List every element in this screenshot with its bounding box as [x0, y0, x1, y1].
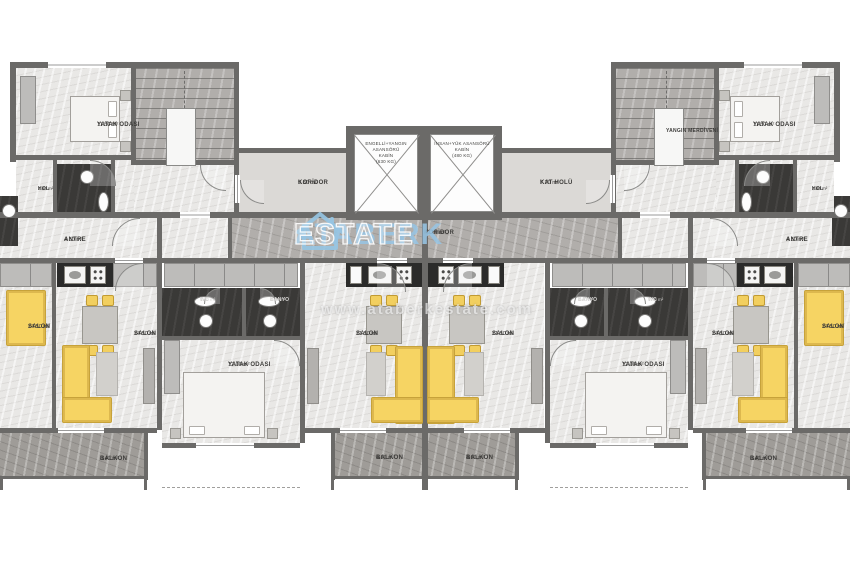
- bed-icon: [585, 372, 667, 438]
- fix-circle-fixture-icon: [638, 314, 652, 328]
- wall: [131, 62, 136, 165]
- wall: [331, 428, 335, 480]
- rug-icon: [96, 352, 118, 396]
- wall: [52, 262, 56, 428]
- wall: [618, 215, 622, 260]
- stair-landing: [166, 108, 196, 166]
- wall: [331, 478, 334, 490]
- chair-icon: [737, 295, 749, 306]
- chair-icon: [753, 295, 765, 306]
- dining-table-icon: [449, 306, 485, 344]
- window: [707, 258, 735, 263]
- sofa-icon: [62, 397, 112, 423]
- chair-icon: [386, 295, 398, 306]
- rug-icon: [732, 352, 754, 396]
- window: [640, 212, 670, 218]
- fix-circle-fixture-icon: [574, 314, 588, 328]
- sofa-icon: [6, 290, 46, 346]
- bed-icon: [730, 96, 780, 142]
- fix-circle-fixture-icon: [834, 204, 848, 218]
- fix-circle-fixture-icon: [263, 314, 277, 328]
- wall: [716, 155, 834, 160]
- wall: [10, 62, 16, 162]
- fix-oval-fixture-icon: [741, 192, 752, 212]
- wall: [111, 160, 115, 214]
- floor-plan-canvas: ENGELLİ+YANGIN ASANSÖRÜ KABİN (630 KG)İN…: [0, 0, 850, 566]
- wall: [10, 62, 238, 68]
- wall: [604, 288, 608, 336]
- tv-unit-icon: [307, 348, 319, 404]
- wall: [53, 160, 57, 214]
- wardrobe-strip-left: [164, 263, 298, 287]
- elevator-label: ENGELLİ+YANGIN ASANSÖRÜ KABİN (630 KG): [355, 141, 417, 165]
- fix-circle-fixture-icon: [199, 314, 213, 328]
- k-stove-fixture-icon: [90, 266, 106, 284]
- dining-table-icon: [733, 306, 769, 344]
- wall: [545, 262, 550, 443]
- wall: [242, 288, 246, 336]
- pillow-icon: [189, 426, 205, 435]
- nightstand-icon: [267, 428, 278, 439]
- pillow-icon: [734, 122, 743, 138]
- fix-oval-fixture-icon: [98, 192, 109, 212]
- pillow-icon: [244, 426, 260, 435]
- nightstand-icon: [170, 428, 181, 439]
- sofa-icon: [371, 397, 423, 423]
- elevator-car: ENGELLİ+YANGIN ASANSÖRÜ KABİN (630 KG): [354, 134, 418, 212]
- wardrobe-bedroom-tl: [20, 76, 36, 124]
- nightstand-icon: [120, 141, 131, 152]
- wall: [144, 478, 147, 490]
- wall: [500, 148, 615, 153]
- wall: [612, 62, 840, 68]
- window: [464, 428, 510, 433]
- wall: [0, 476, 148, 479]
- bed-icon: [183, 372, 265, 438]
- wardrobe-bedroom-right: [670, 340, 686, 394]
- rug-icon: [464, 352, 484, 396]
- sofa-icon: [738, 397, 788, 423]
- wall: [834, 62, 840, 162]
- wall: [157, 215, 162, 430]
- nightstand-icon: [120, 90, 131, 101]
- wall: [144, 428, 148, 480]
- k-fridge-fixture-icon: [488, 266, 500, 284]
- k-sink-fixture-icon: [64, 266, 86, 284]
- chair-icon: [370, 295, 382, 306]
- rug-icon: [366, 352, 386, 396]
- wall: [162, 336, 300, 340]
- wall: [703, 478, 706, 490]
- wardrobe-bedroom-tr: [814, 76, 830, 124]
- tv-unit-icon: [143, 348, 155, 404]
- wall: [794, 262, 798, 428]
- chair-icon: [102, 295, 114, 306]
- wc-right: [608, 288, 688, 336]
- wall: [0, 478, 3, 490]
- elevator-label: İNSAN+YÜK ASANSÖRÜ KABİN (480 KG): [431, 141, 493, 159]
- wardrobe-far-left: [0, 263, 52, 287]
- sofa-icon: [804, 290, 844, 346]
- bed-icon: [70, 96, 120, 142]
- wardrobe-bedroom-left: [164, 340, 180, 394]
- antre-right-2: [622, 218, 688, 260]
- pillow-icon: [591, 426, 607, 435]
- wardrobe-strip-right: [552, 263, 686, 287]
- window: [377, 258, 407, 263]
- wall: [235, 148, 350, 153]
- chair-icon: [453, 295, 465, 306]
- nightstand-icon: [719, 90, 730, 101]
- window: [180, 212, 210, 218]
- wall: [515, 428, 519, 480]
- fix-circle-fixture-icon: [2, 204, 16, 218]
- pillow-icon: [734, 101, 743, 117]
- wall: [300, 262, 305, 443]
- window: [196, 443, 254, 448]
- tv-unit-icon: [531, 348, 543, 404]
- pillow-icon: [108, 101, 117, 117]
- window: [610, 175, 615, 203]
- balcony-1: [0, 433, 144, 476]
- window: [744, 62, 802, 68]
- wall: [702, 428, 706, 480]
- wall: [702, 476, 850, 479]
- wall: [16, 155, 134, 160]
- antre-left-2: [162, 218, 228, 260]
- k-sink-fixture-icon: [764, 266, 786, 284]
- window: [596, 443, 654, 448]
- balcony-4: [706, 433, 850, 476]
- wall: [793, 160, 797, 214]
- window: [48, 62, 106, 68]
- chair-icon: [469, 295, 481, 306]
- tv-unit-icon: [695, 348, 707, 404]
- pillow-icon: [646, 426, 662, 435]
- window: [58, 428, 104, 433]
- wall: [735, 160, 739, 214]
- window: [340, 428, 386, 433]
- wardrobe-far-right: [798, 263, 850, 287]
- projection-dash-line: [162, 487, 300, 488]
- wall: [428, 476, 519, 479]
- stair-landing: [654, 108, 684, 166]
- sofa-icon: [427, 397, 479, 423]
- elevator-car: İNSAN+YÜK ASANSÖRÜ KABİN (480 KG): [430, 134, 494, 212]
- wall: [515, 478, 518, 490]
- nightstand-icon: [719, 141, 730, 152]
- window: [746, 428, 792, 433]
- wall: [228, 215, 232, 260]
- k-stove-fixture-icon: [744, 266, 760, 284]
- projection-dash-line: [550, 487, 688, 488]
- dining-table-icon: [82, 306, 118, 344]
- nightstand-icon: [669, 428, 680, 439]
- nightstand-icon: [572, 428, 583, 439]
- k-fridge-fixture-icon: [350, 266, 362, 284]
- wall: [331, 476, 422, 479]
- chair-icon: [86, 295, 98, 306]
- wall: [688, 215, 693, 430]
